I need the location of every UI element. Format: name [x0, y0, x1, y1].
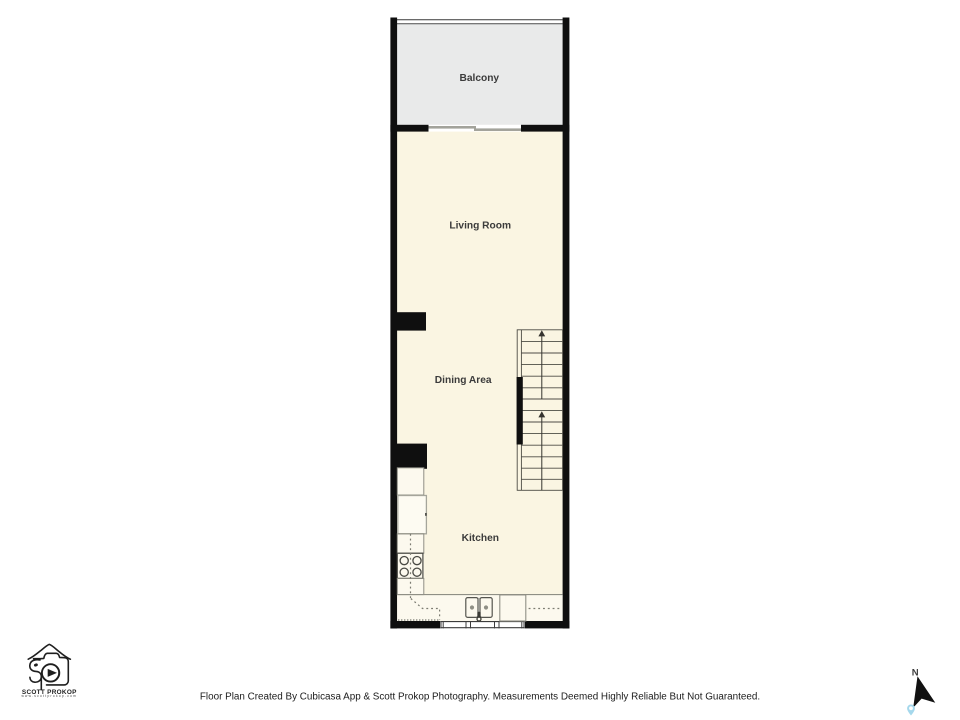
svg-text:Living Room: Living Room: [449, 221, 511, 232]
svg-text:Dining Area: Dining Area: [435, 375, 492, 386]
svg-text:Kitchen: Kitchen: [462, 533, 499, 544]
svg-text:Balcony: Balcony: [459, 73, 499, 84]
svg-text:Floor Plan Created By Cubicasa: Floor Plan Created By Cubicasa App & Sco…: [200, 691, 760, 702]
svg-text:www.scottprokop.com: www.scottprokop.com: [21, 694, 77, 698]
